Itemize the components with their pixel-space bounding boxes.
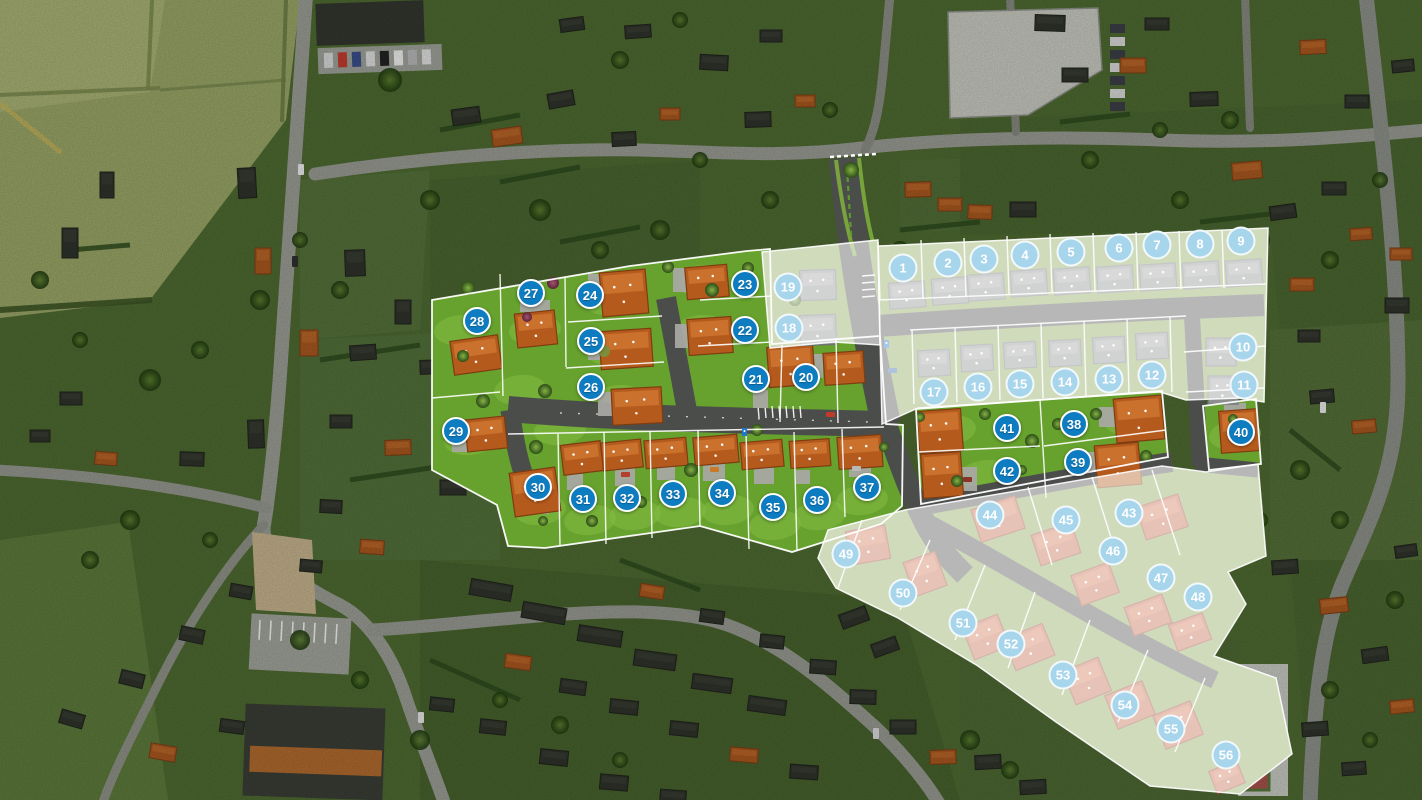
lot-marker-39[interactable]: 39: [1064, 448, 1092, 476]
lot-marker-20[interactable]: 20: [792, 363, 820, 391]
lot-marker-51[interactable]: 51: [949, 609, 978, 638]
lot-marker-53[interactable]: 53: [1049, 661, 1078, 690]
lot-marker-18[interactable]: 18: [775, 314, 804, 343]
lot-marker-32[interactable]: 32: [613, 484, 641, 512]
lot-marker-21[interactable]: 21: [742, 365, 770, 393]
lot-marker-5[interactable]: 5: [1057, 238, 1086, 267]
lot-marker-31[interactable]: 31: [569, 485, 597, 513]
lot-marker-43[interactable]: 43: [1115, 499, 1144, 528]
lot-marker-8[interactable]: 8: [1186, 230, 1215, 259]
lot-marker-56[interactable]: 56: [1212, 741, 1241, 770]
lot-marker-34[interactable]: 34: [708, 479, 736, 507]
lot-marker-36[interactable]: 36: [803, 486, 831, 514]
lot-marker-10[interactable]: 10: [1229, 333, 1258, 362]
lot-marker-3[interactable]: 3: [970, 245, 999, 274]
lot-marker-1[interactable]: 1: [889, 254, 918, 283]
lot-marker-15[interactable]: 15: [1006, 370, 1035, 399]
lot-marker-12[interactable]: 12: [1138, 361, 1167, 390]
lot-marker-42[interactable]: 42: [993, 457, 1021, 485]
lot-marker-16[interactable]: 16: [964, 373, 993, 402]
lot-marker-48[interactable]: 48: [1184, 583, 1213, 612]
lot-marker-17[interactable]: 17: [920, 378, 949, 407]
lot-marker-33[interactable]: 33: [659, 480, 687, 508]
lot-marker-49[interactable]: 49: [832, 540, 861, 569]
lot-marker-27[interactable]: 27: [517, 279, 545, 307]
lot-marker-38[interactable]: 38: [1060, 410, 1088, 438]
lot-marker-29[interactable]: 29: [442, 417, 470, 445]
lot-marker-28[interactable]: 28: [463, 307, 491, 335]
lot-marker-6[interactable]: 6: [1105, 234, 1134, 263]
lot-marker-23[interactable]: 23: [731, 270, 759, 298]
lot-marker-19[interactable]: 19: [774, 273, 803, 302]
lot-marker-14[interactable]: 14: [1051, 368, 1080, 397]
lot-marker-46[interactable]: 46: [1099, 537, 1128, 566]
lot-marker-11[interactable]: 11: [1230, 371, 1259, 400]
lot-marker-45[interactable]: 45: [1052, 506, 1081, 535]
lot-marker-47[interactable]: 47: [1147, 564, 1176, 593]
lot-marker-26[interactable]: 26: [577, 373, 605, 401]
lot-marker-4[interactable]: 4: [1011, 241, 1040, 270]
aerial-site-plan: 1234567891011121314151617181920212223242…: [0, 0, 1422, 800]
lot-marker-24[interactable]: 24: [576, 281, 604, 309]
lot-marker-9[interactable]: 9: [1227, 227, 1256, 256]
lot-marker-35[interactable]: 35: [759, 493, 787, 521]
lot-marker-37[interactable]: 37: [853, 473, 881, 501]
lot-marker-2[interactable]: 2: [934, 249, 963, 278]
lot-marker-50[interactable]: 50: [889, 579, 918, 608]
lot-marker-7[interactable]: 7: [1143, 231, 1172, 260]
lot-marker-41[interactable]: 41: [993, 414, 1021, 442]
lot-marker-30[interactable]: 30: [524, 473, 552, 501]
lot-marker-13[interactable]: 13: [1095, 365, 1124, 394]
lot-marker-40[interactable]: 40: [1227, 418, 1255, 446]
lot-marker-22[interactable]: 22: [731, 316, 759, 344]
lot-marker-55[interactable]: 55: [1157, 715, 1186, 744]
lot-marker-25[interactable]: 25: [577, 327, 605, 355]
lot-marker-52[interactable]: 52: [997, 630, 1026, 659]
lot-markers-layer: 1234567891011121314151617181920212223242…: [0, 0, 1422, 800]
lot-marker-54[interactable]: 54: [1111, 691, 1140, 720]
lot-marker-44[interactable]: 44: [976, 501, 1005, 530]
